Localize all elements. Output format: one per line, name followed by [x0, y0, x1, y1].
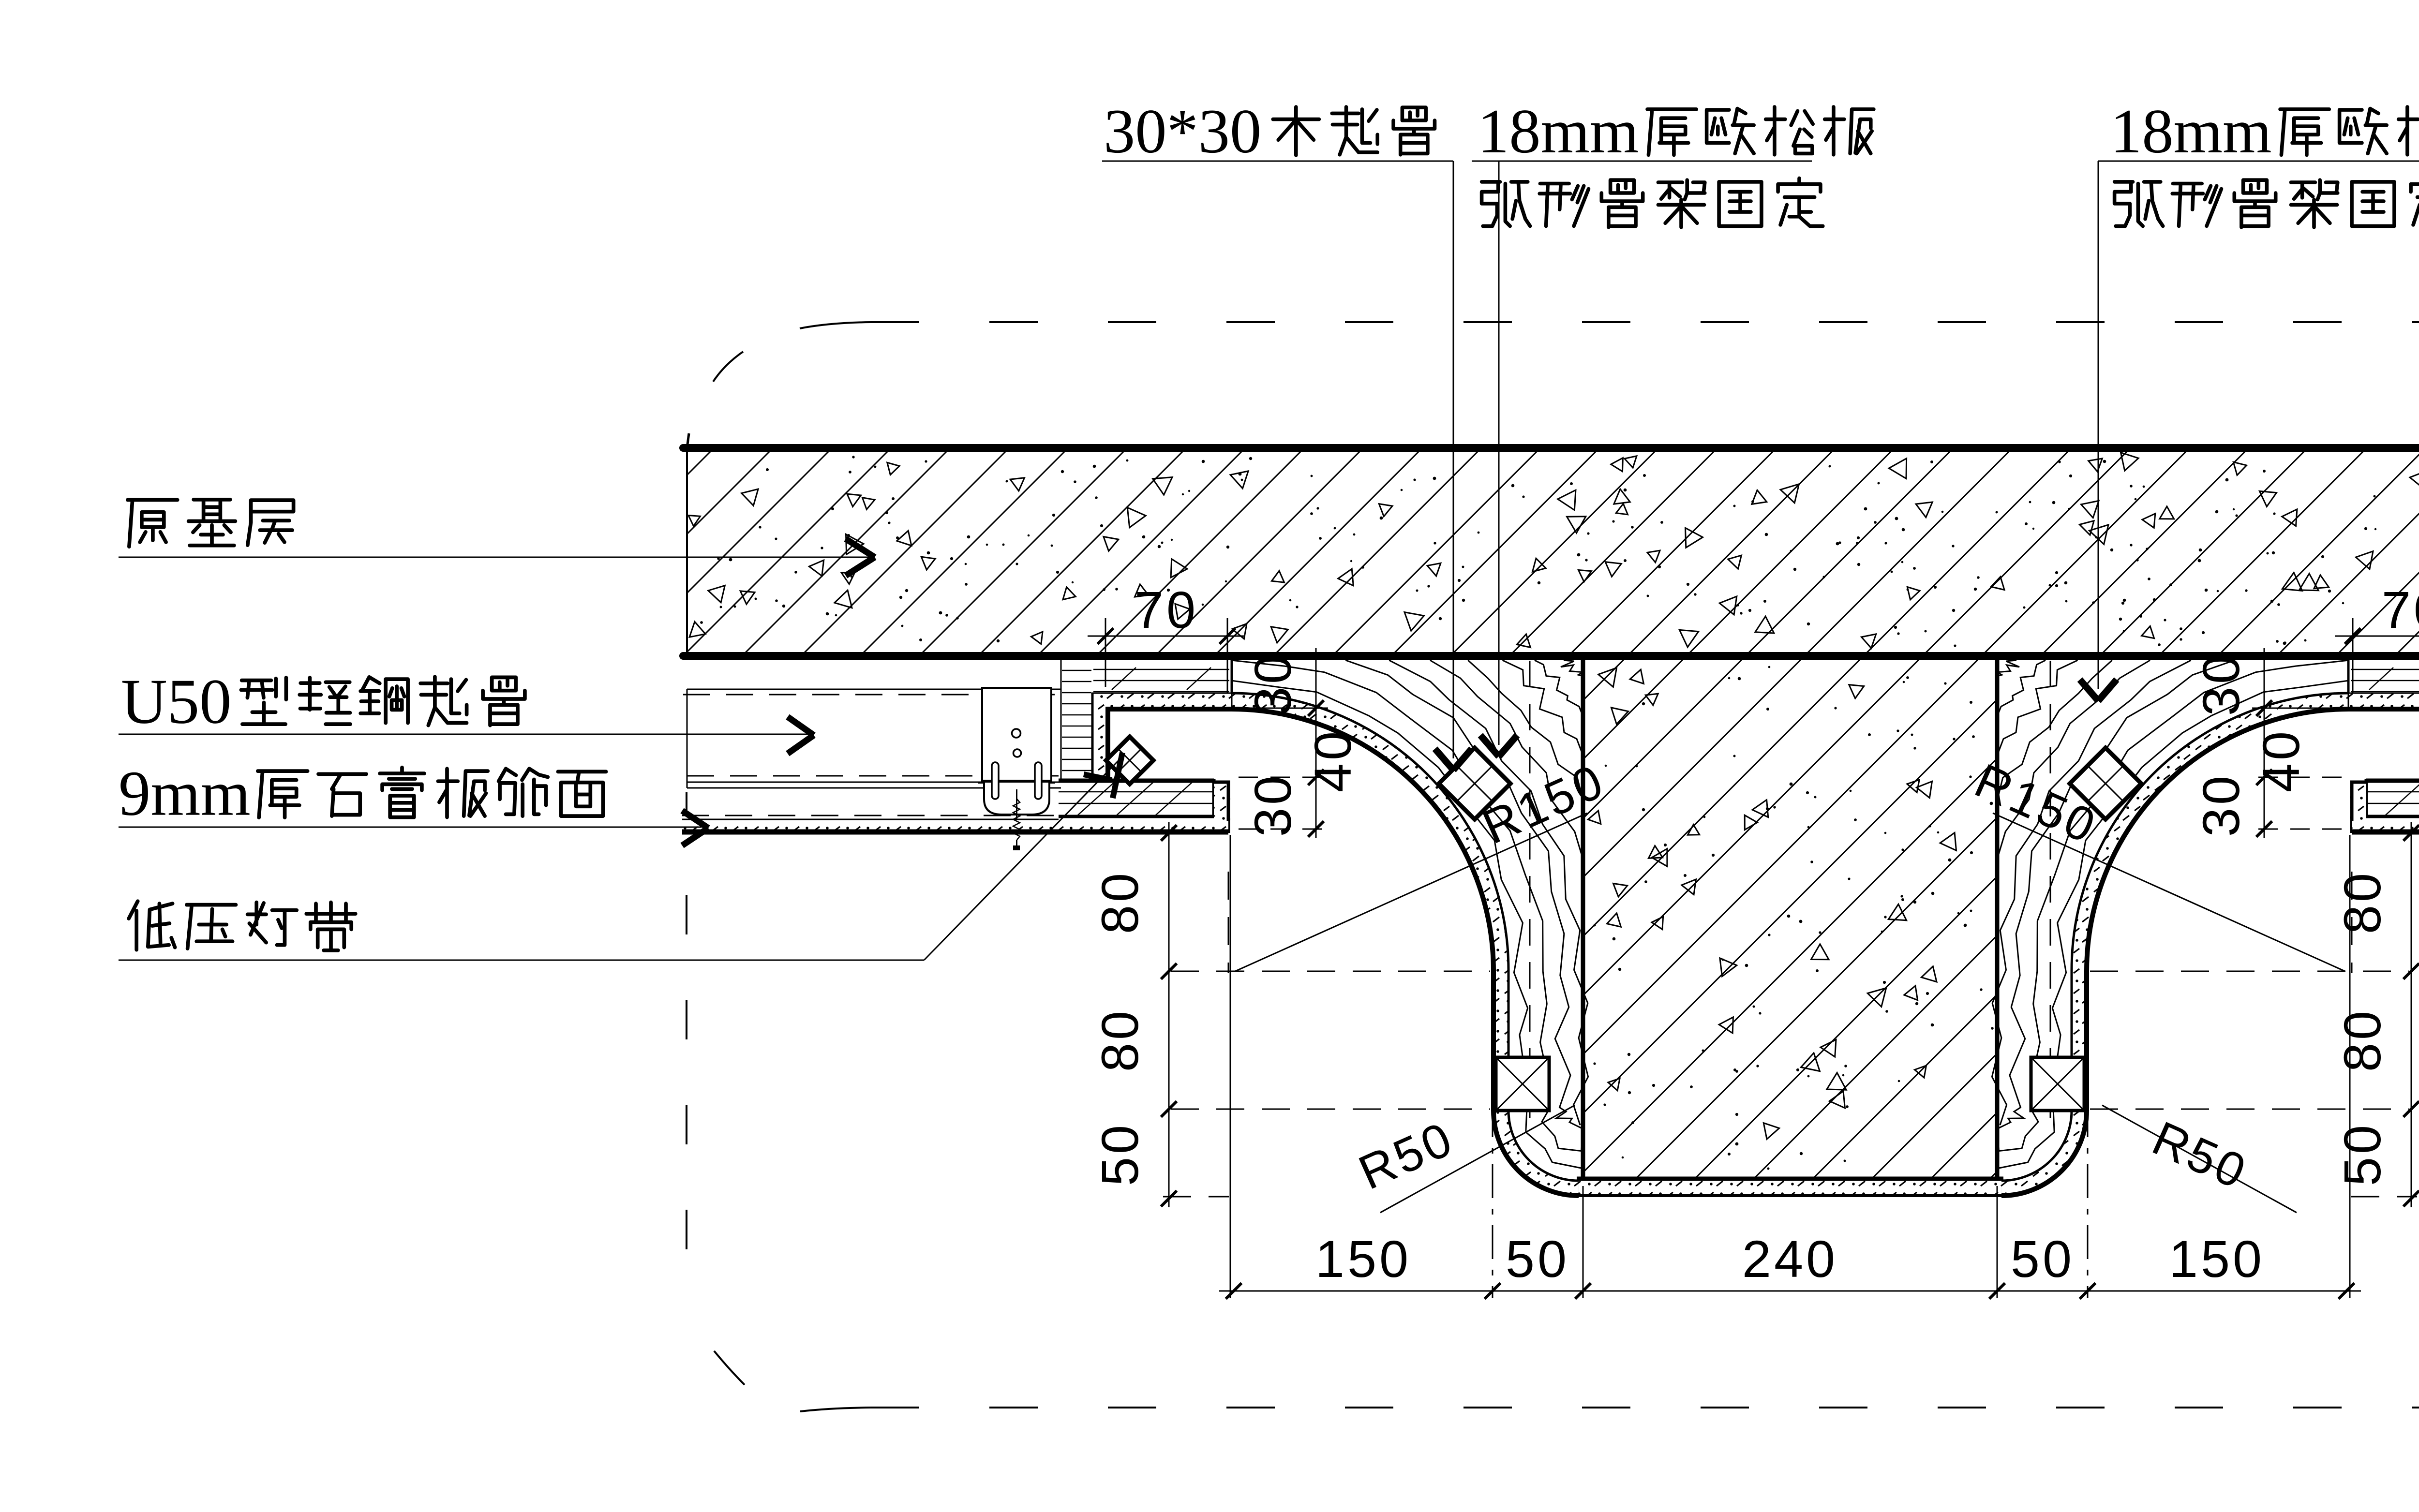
svg-text:50: 50: [1506, 1230, 1569, 1288]
svg-text:50: 50: [1090, 1122, 1149, 1186]
svg-text:240: 240: [1742, 1230, 1838, 1288]
svg-text:30*30: 30*30: [1104, 97, 1261, 166]
svg-text:70: 70: [1135, 580, 1198, 639]
svg-text:30: 30: [1243, 773, 1302, 837]
svg-text:150: 150: [2169, 1230, 2265, 1288]
svg-text:80: 80: [1090, 1008, 1149, 1072]
svg-text:80: 80: [1090, 870, 1149, 934]
svg-text:40: 40: [1303, 728, 1362, 792]
svg-text:40: 40: [2252, 728, 2310, 792]
svg-text:18mm: 18mm: [1478, 97, 1639, 166]
svg-text:18mm: 18mm: [2110, 97, 2272, 166]
svg-text:70: 70: [2382, 580, 2419, 639]
svg-text:30: 30: [2192, 652, 2250, 716]
svg-text:80: 80: [2333, 1008, 2391, 1072]
svg-text:30: 30: [1243, 652, 1302, 716]
svg-text:9mm: 9mm: [119, 758, 251, 829]
svg-text:80: 80: [2333, 870, 2391, 934]
svg-text:150: 150: [1315, 1230, 1411, 1288]
svg-text:50: 50: [2011, 1230, 2075, 1288]
svg-text:30: 30: [2192, 773, 2250, 837]
svg-text:U50: U50: [121, 666, 231, 737]
svg-text:50: 50: [2333, 1122, 2391, 1186]
